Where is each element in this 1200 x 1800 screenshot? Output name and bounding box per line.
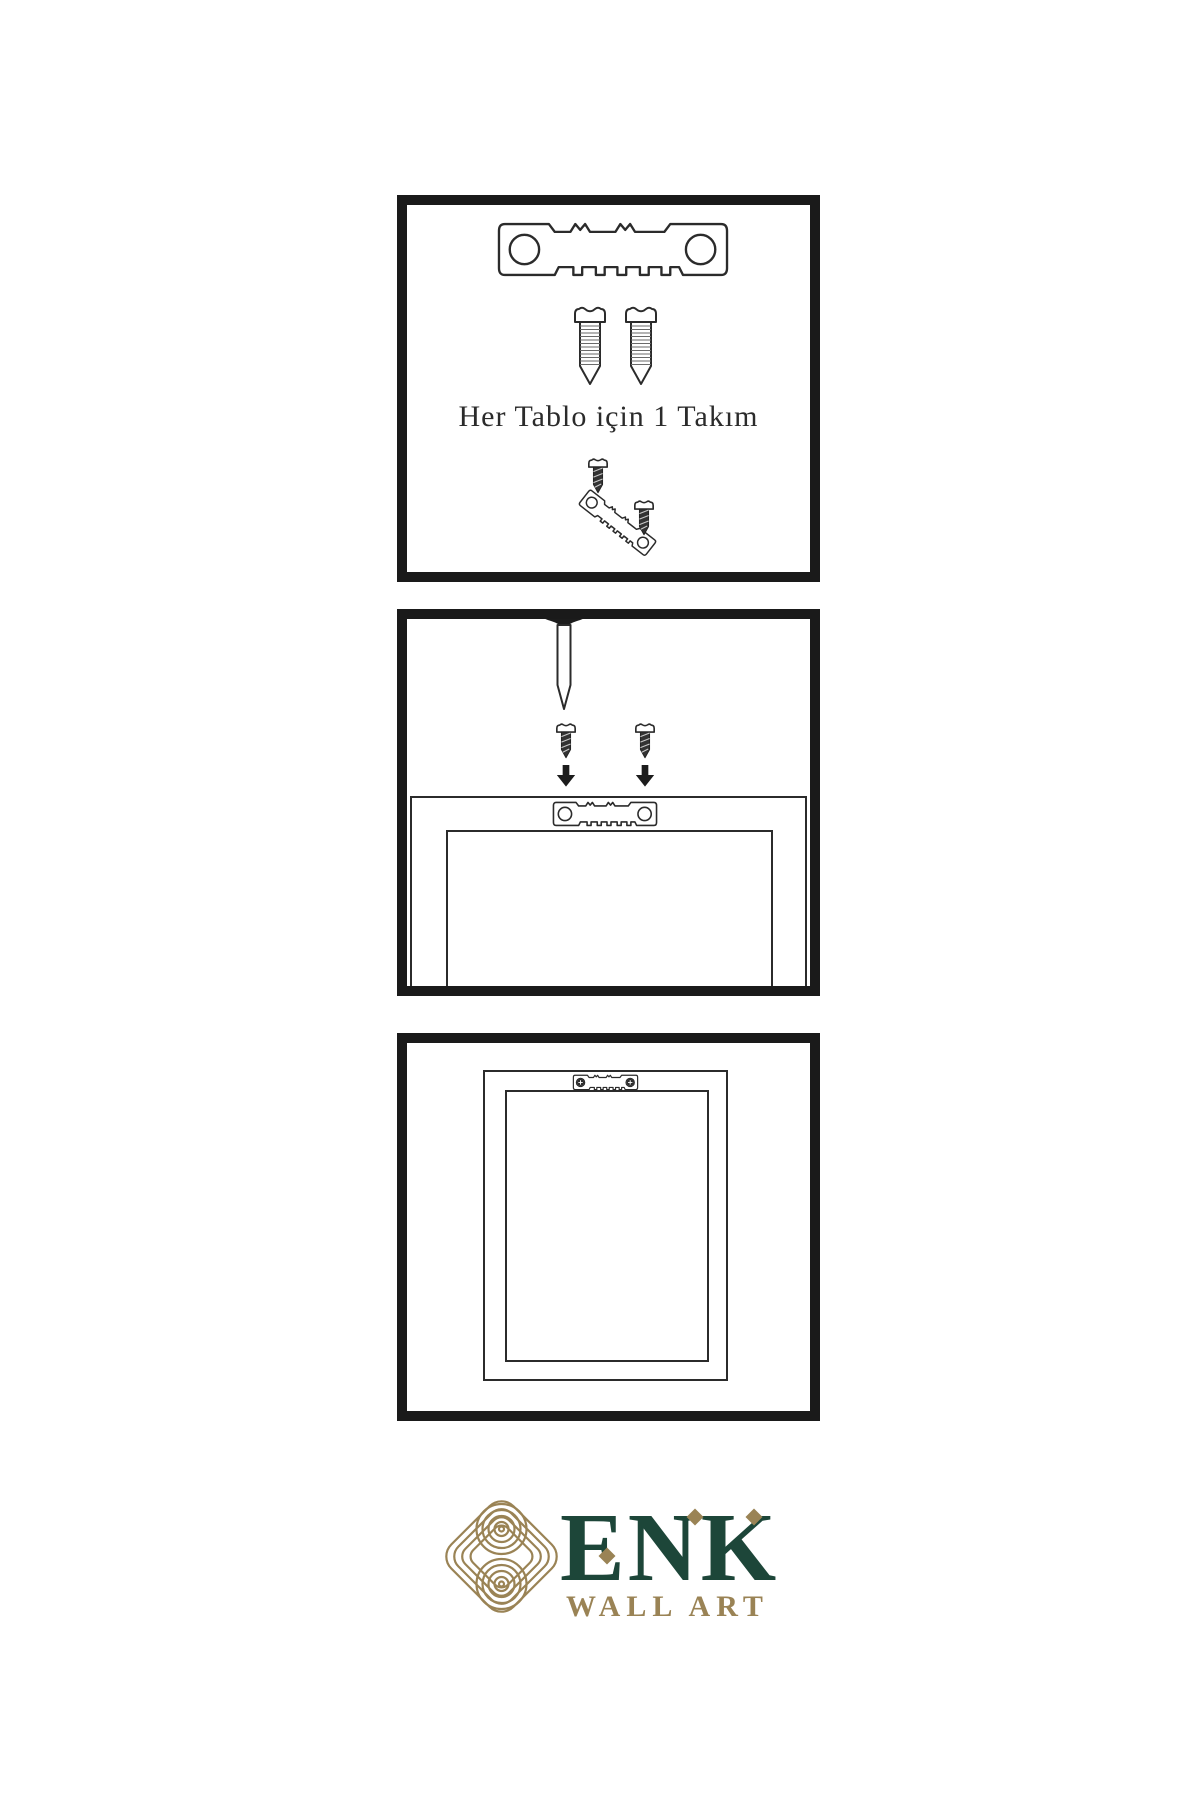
sawtooth-hanger-icon <box>498 223 728 276</box>
screw-icon <box>573 306 607 388</box>
nail-icon <box>539 613 589 713</box>
sawtooth-hanger-icon <box>553 802 657 826</box>
step-3-panel <box>397 1033 820 1421</box>
dark-screw-icon <box>634 722 656 761</box>
step-2-panel <box>397 609 820 996</box>
brand-tagline: WALL ART <box>566 1592 769 1622</box>
arrow-down-icon <box>635 765 655 787</box>
mounted-hanger-icon <box>573 1075 638 1090</box>
kit-caption: Her Tablo için 1 Takım <box>407 400 810 434</box>
arrow-down-icon <box>556 765 576 787</box>
knot-logo-icon <box>440 1485 563 1628</box>
screw-icon <box>624 306 658 388</box>
instruction-sheet: Her Tablo için 1 Takım <box>0 0 1200 1800</box>
frame-back-inner-edge <box>505 1090 709 1362</box>
dark-screw-icon <box>555 722 577 761</box>
frame-back-inner-edge <box>446 830 773 986</box>
step-1-panel: Her Tablo için 1 Takım <box>397 195 820 582</box>
dark-screw-icon <box>633 499 655 538</box>
brand-name: ENK <box>560 1499 779 1596</box>
